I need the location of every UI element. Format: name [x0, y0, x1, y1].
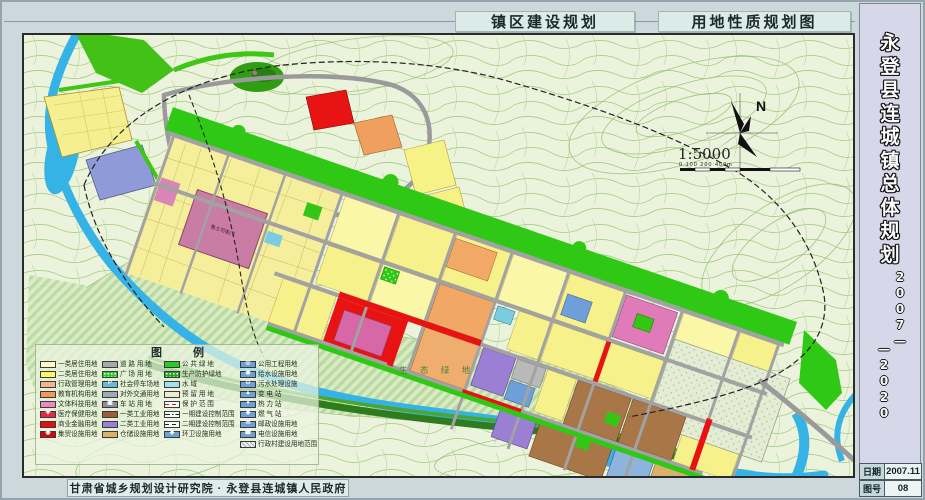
legend-swatch — [40, 371, 56, 378]
legend-item-label: 公用工程用地 — [258, 361, 297, 368]
sidebar-title-char: 划 — [860, 244, 920, 268]
legend-item-label: 二期建设控制范围 — [182, 421, 235, 428]
legend-item-label: 文体科技用地 — [58, 401, 97, 408]
legend-item: ◆环卫设施用地 — [164, 431, 238, 438]
legend-item-label: 对外交通用地 — [120, 391, 159, 398]
legend-swatch-icon: ✉ — [241, 421, 255, 426]
legend-swatch-icon: ▲ — [241, 391, 255, 396]
legend-swatch: ◆ — [240, 411, 256, 418]
plan-period-start: 2007— — [893, 270, 907, 350]
plan-sheet: 鲁土司衙门 — [0, 0, 925, 500]
legend-swatch — [102, 411, 118, 418]
land-use-map: 鲁土司衙门 — [22, 33, 855, 478]
legend-item-label: 热 力 站 — [258, 401, 281, 408]
legend-column: 公 共 绿 地生产防护绿地水 域预 留 用 地保 护 范 围一期建设控制范围二期… — [164, 361, 238, 448]
legend-swatch — [164, 391, 180, 398]
legend-swatch: ◉ — [240, 371, 256, 378]
legend-item: 文体科技用地 — [40, 401, 100, 408]
legend-swatch-icon: ◉ — [41, 431, 55, 436]
legend-item-label: 电信设施用地 — [258, 431, 297, 438]
legend-swatch: ☎ — [240, 431, 256, 438]
legend-item: 预 留 用 地 — [164, 391, 238, 398]
legend-swatch — [164, 381, 180, 388]
legend-swatch: P — [102, 381, 118, 388]
sidebar-title-char: 连 — [860, 103, 920, 127]
legend-item: ▣车 站 用 地 — [102, 401, 162, 408]
legend-item: 广 场 用 地 — [102, 371, 162, 378]
legend-item-label: 燃 气 站 — [258, 411, 281, 418]
legend-item-label: 医疗保健用地 — [58, 411, 97, 418]
legend-item-label: 集贸设施用地 — [58, 431, 97, 438]
legend-swatch-icon: ◆ — [165, 431, 179, 436]
sidebar-title-char: 登 — [860, 56, 920, 80]
legend-swatch — [40, 381, 56, 388]
sheet-number-row: 图号 08 — [859, 480, 922, 497]
legend-columns: 一类居住用地二类居住用地行政管理用地教育机构用地文体科技用地✚医疗保健用地商业金… — [40, 361, 315, 448]
date-value: 2007.11 — [884, 463, 922, 480]
legend-item: 道 路 用 地 — [102, 361, 162, 368]
sidebar-title-char: 体 — [860, 197, 920, 221]
legend-swatch-icon: ✚ — [41, 411, 55, 416]
legend-item: ◉给水设施用地 — [240, 371, 321, 378]
legend-swatch — [40, 401, 56, 408]
legend-item-label: 公 共 绿 地 — [182, 361, 214, 368]
legend-swatch-icon: ◆ — [241, 411, 255, 416]
legend-item: 一期建设控制范围 — [164, 411, 238, 418]
legend-item-label: 二类工业用地 — [120, 421, 159, 428]
legend-column: ◎公用工程用地◉给水设施用地⊙污水处理设施▲变 电 站●热 力 站◆燃 气 站✉… — [240, 361, 321, 448]
legend-item-label: 变 电 站 — [258, 391, 281, 398]
legend-item: 仓储设施用地 — [102, 431, 162, 438]
legend-item: ◎公用工程用地 — [240, 361, 321, 368]
sidebar: 永登县连城镇总体规划 2007— —2020 日期 2007.11 图号 08 — [859, 3, 921, 497]
legend-item: 二期建设控制范围 — [164, 421, 238, 428]
legend-swatch: ◆ — [164, 431, 180, 438]
legend-item-label: 环卫设施用地 — [182, 431, 221, 438]
sidebar-title-char: 城 — [860, 126, 920, 150]
legend-swatch — [40, 391, 56, 398]
legend-item-label: 商业金融用地 — [58, 421, 97, 428]
legend-column: 一类居住用地二类居住用地行政管理用地教育机构用地文体科技用地✚医疗保健用地商业金… — [40, 361, 100, 448]
sidebar-title-char: 总 — [860, 173, 920, 197]
legend-item: 商业金融用地 — [40, 421, 100, 428]
legend-item-label: 保 护 范 围 — [182, 401, 214, 408]
title-land-use-plan: 用地性质规划图 — [658, 11, 851, 32]
sidebar-title: 永登县连城镇总体规划 — [860, 32, 920, 267]
legend-item: 一类居住用地 — [40, 361, 100, 368]
legend-swatch — [40, 361, 56, 368]
legend-item-label: 预 留 用 地 — [182, 391, 214, 398]
legend-item: ●热 力 站 — [240, 401, 321, 408]
legend-item-label: 一期建设控制范围 — [182, 411, 235, 418]
legend-swatch-icon: ◎ — [241, 361, 255, 366]
legend-swatch: ◎ — [240, 361, 256, 368]
legend-swatch: ▲ — [240, 391, 256, 398]
legend-item-label: 污水处理设施 — [258, 381, 297, 388]
legend-item-label: 一类居住用地 — [58, 361, 97, 368]
legend-item: 水 域 — [164, 381, 238, 388]
legend-item: ✚医疗保健用地 — [40, 411, 100, 418]
legend-item-label: 邮政设施用地 — [258, 421, 297, 428]
legend-swatch-icon: P — [103, 381, 117, 386]
sidebar-title-char: 规 — [860, 220, 920, 244]
eco-green-label: 生 态 绿 地 — [399, 365, 475, 375]
legend-item: 教育机构用地 — [40, 391, 100, 398]
legend-swatch: ◉ — [40, 431, 56, 438]
scale-bar — [680, 168, 800, 171]
legend-item-label: 水 域 — [182, 381, 197, 388]
legend-title: 图 例 — [40, 347, 315, 360]
legend-item-label: 教育机构用地 — [58, 391, 97, 398]
legend-item-label: 一类工业用地 — [120, 411, 159, 418]
legend-swatch: ▣ — [102, 401, 118, 408]
legend-item: 公 共 绿 地 — [164, 361, 238, 368]
legend-swatch-icon: ☎ — [241, 431, 255, 436]
legend-swatch — [102, 421, 118, 428]
legend-line-sample — [165, 424, 179, 426]
legend-swatch-icon: ⊙ — [241, 381, 255, 386]
legend-item: 一类工业用地 — [102, 411, 162, 418]
legend-item: 二类居住用地 — [40, 371, 100, 378]
sheet-number-label: 图号 — [859, 480, 884, 497]
legend-line-sample — [165, 414, 179, 416]
date-label: 日期 — [859, 463, 884, 480]
sheet-number-value: 08 — [884, 480, 922, 497]
legend-item-label: 仓储设施用地 — [120, 431, 159, 438]
credit-bar: 甘肃省城乡规划设计研究院 · 永登县连城镇人民政府 — [67, 479, 349, 497]
legend-column: 道 路 用 地广 场 用 地P社会停车场地对外交通用地▣车 站 用 地一类工业用… — [102, 361, 162, 448]
sidebar-title-char: 永 — [860, 32, 920, 56]
legend-item-label: 生产防护绿地 — [182, 371, 221, 378]
legend-item: P社会停车场地 — [102, 381, 162, 388]
legend-item-label: 行政村建设用地范围 — [258, 441, 317, 448]
legend-swatch — [40, 421, 56, 428]
sidebar-title-char: 县 — [860, 79, 920, 103]
legend-swatch-icon: ● — [241, 401, 255, 406]
legend-item-label: 行政管理用地 — [58, 381, 97, 388]
legend-item: 对外交通用地 — [102, 391, 162, 398]
legend-item-label: 车 站 用 地 — [120, 401, 152, 408]
legend-swatch-icon: ◉ — [241, 371, 255, 376]
legend-item-label: 给水设施用地 — [258, 371, 297, 378]
scale-text: 1:5000 — [678, 145, 731, 163]
legend-item: ◆燃 气 站 — [240, 411, 321, 418]
legend-item: ◉集贸设施用地 — [40, 431, 100, 438]
legend-swatch — [164, 411, 180, 418]
legend-item-label: 道 路 用 地 — [120, 361, 152, 368]
legend-item: ✉邮政设施用地 — [240, 421, 321, 428]
legend-item-label: 社会停车场地 — [120, 381, 159, 388]
legend-item: 生产防护绿地 — [164, 371, 238, 378]
legend-item: 二类工业用地 — [102, 421, 162, 428]
legend-item-label: 二类居住用地 — [58, 371, 97, 378]
north-label: N — [756, 98, 766, 114]
legend-item: ☎电信设施用地 — [240, 431, 321, 438]
legend-swatch — [240, 441, 256, 448]
date-row: 日期 2007.11 — [859, 463, 922, 480]
legend-item: 行政村建设用地范围 — [240, 441, 321, 448]
legend-item: 保 护 范 围 — [164, 401, 238, 408]
plan-period-end: —2020 — [877, 342, 891, 422]
legend-swatch — [164, 361, 180, 368]
legend-swatch: ✚ — [40, 411, 56, 418]
title-construction-plan: 镇区建设规划 — [455, 11, 635, 32]
legend-swatch: ⊙ — [240, 381, 256, 388]
legend-item: 行政管理用地 — [40, 381, 100, 388]
legend-swatch — [102, 371, 118, 378]
legend-swatch — [102, 361, 118, 368]
legend-item: ⊙污水处理设施 — [240, 381, 321, 388]
legend-item: ▲变 电 站 — [240, 391, 321, 398]
legend-swatch — [102, 391, 118, 398]
legend-line-sample — [165, 404, 179, 406]
scale-tick-labels: 0 100 200 400m — [679, 162, 733, 168]
legend-swatch — [102, 431, 118, 438]
sidebar-title-char: 镇 — [860, 150, 920, 174]
legend-item-label: 广 场 用 地 — [120, 371, 152, 378]
legend-swatch — [164, 371, 180, 378]
legend: 图 例 一类居住用地二类居住用地行政管理用地教育机构用地文体科技用地✚医疗保健用… — [35, 344, 319, 465]
legend-swatch-icon: ▣ — [103, 401, 117, 406]
legend-swatch — [164, 421, 180, 428]
legend-swatch: ● — [240, 401, 256, 408]
legend-swatch — [164, 401, 180, 408]
legend-swatch: ✉ — [240, 421, 256, 428]
